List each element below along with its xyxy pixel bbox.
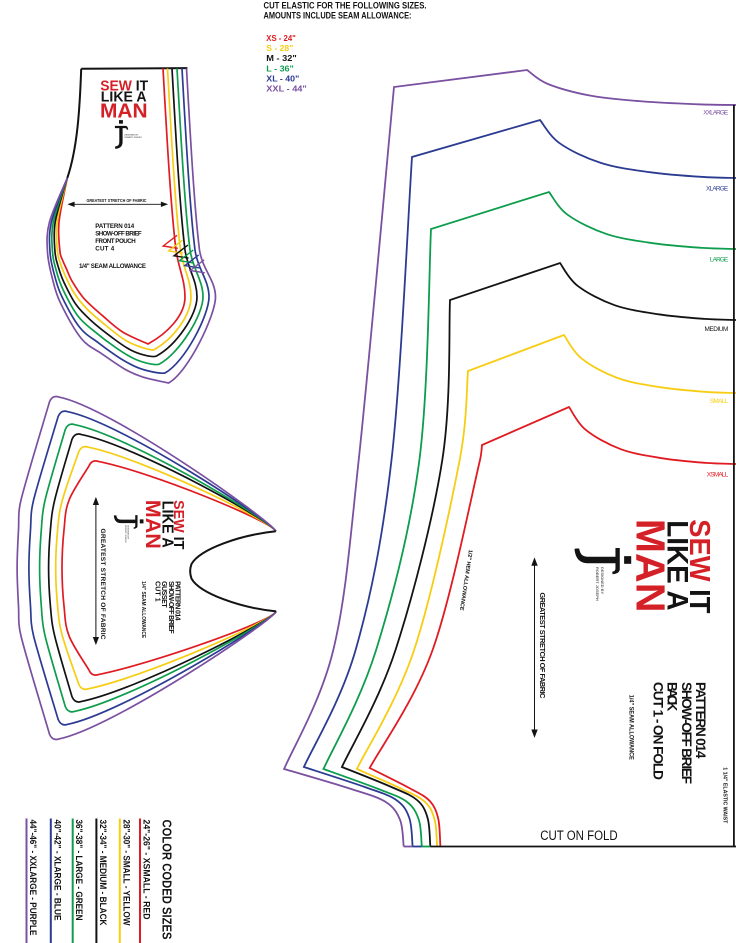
svg-text:1/4" SEAM ALLOWANCE: 1/4" SEAM ALLOWANCE bbox=[79, 263, 146, 270]
svg-text:28"-30" - SMALL - YELLOW: 28"-30" - SMALL - YELLOW bbox=[121, 820, 131, 926]
svg-text:AMOUNTS INCLUDE SEAM ALLOWANCE: AMOUNTS INCLUDE SEAM ALLOWANCE: bbox=[264, 11, 412, 21]
svg-text:40"-42" - XLARGE - BLUE: 40"-42" - XLARGE - BLUE bbox=[52, 820, 62, 921]
svg-text:44"-46" - XXLARGE - PURPLE: 44"-46" - XXLARGE - PURPLE bbox=[28, 820, 38, 936]
svg-text:DESIGNED BY: DESIGNED BY bbox=[600, 567, 605, 595]
svg-text:LARGE: LARGE bbox=[710, 256, 728, 263]
svg-text:SHOW-OFF BRIEF: SHOW-OFF BRIEF bbox=[679, 682, 694, 784]
svg-text:SHOW-OFF BRIEF: SHOW-OFF BRIEF bbox=[95, 231, 142, 238]
svg-text:MAN: MAN bbox=[100, 100, 148, 123]
svg-text:XXLARGE: XXLARGE bbox=[703, 110, 728, 117]
svg-text:DESIGNED BY: DESIGNED BY bbox=[127, 525, 129, 540]
svg-text:CUT 4: CUT 4 bbox=[95, 245, 115, 252]
svg-text:XS - 24": XS - 24" bbox=[266, 33, 296, 43]
svg-text:GREATEST STRETCH OF FABRIC: GREATEST STRETCH OF FABRIC bbox=[87, 198, 147, 203]
svg-text:MAN: MAN bbox=[141, 500, 164, 549]
svg-text:PATTERN 014: PATTERN 014 bbox=[693, 682, 708, 759]
svg-text:S - 28": S - 28" bbox=[266, 43, 293, 53]
svg-text:XL - 40": XL - 40" bbox=[266, 74, 299, 84]
svg-text:ROBERT JOSEPH: ROBERT JOSEPH bbox=[595, 567, 600, 601]
svg-text:36"-38" - LARGE - GREEN: 36"-38" - LARGE - GREEN bbox=[74, 820, 84, 921]
svg-text:M - 32": M - 32" bbox=[266, 53, 297, 63]
svg-text:XSMALL: XSMALL bbox=[707, 472, 729, 479]
svg-text:CUT 1: CUT 1 bbox=[153, 581, 160, 602]
svg-text:CUT 1 - ON FOLD: CUT 1 - ON FOLD bbox=[651, 682, 666, 780]
svg-text:BACK: BACK bbox=[665, 682, 680, 711]
svg-text:COLOR CODED SIZES: COLOR CODED SIZES bbox=[160, 820, 175, 940]
svg-text:32"-34" - MEDIUM - BLACK: 32"-34" - MEDIUM - BLACK bbox=[98, 820, 108, 926]
svg-text:1/4" SEAM ALLOWANCE: 1/4" SEAM ALLOWANCE bbox=[140, 581, 146, 638]
svg-text:ROBERT JOSEPH: ROBERT JOSEPH bbox=[124, 525, 126, 543]
svg-text:1/4" SEAM ALLOWANCE: 1/4" SEAM ALLOWANCE bbox=[628, 695, 634, 760]
svg-text:SMALL: SMALL bbox=[710, 398, 729, 405]
svg-text:MAN: MAN bbox=[627, 519, 673, 613]
svg-text:CUT ON FOLD: CUT ON FOLD bbox=[540, 828, 618, 843]
svg-text:GREATEST STRETCH OF FABRIC: GREATEST STRETCH OF FABRIC bbox=[99, 529, 106, 640]
svg-text:FRONT POUCH: FRONT POUCH bbox=[95, 238, 136, 245]
svg-text:XXL - 44": XXL - 44" bbox=[266, 84, 307, 94]
svg-text:PATTERN 014: PATTERN 014 bbox=[95, 223, 135, 230]
svg-text:L - 36": L - 36" bbox=[266, 63, 294, 73]
svg-text:CUT ELASTIC FOR THE FOLLOWING: CUT ELASTIC FOR THE FOLLOWING SIZES. bbox=[264, 1, 427, 11]
svg-text:24"-26" - XSMALL - RED: 24"-26" - XSMALL - RED bbox=[142, 820, 152, 920]
svg-text:1 1/4" ELASTIC WAIST: 1 1/4" ELASTIC WAIST bbox=[721, 767, 727, 824]
svg-text:ROBERT JOSEPH: ROBERT JOSEPH bbox=[125, 137, 143, 139]
svg-text:MEDIUM: MEDIUM bbox=[705, 326, 729, 333]
svg-text:XLARGE: XLARGE bbox=[706, 186, 728, 193]
svg-text:GREATEST STRETCH OF FABRIC: GREATEST STRETCH OF FABRIC bbox=[538, 593, 547, 700]
